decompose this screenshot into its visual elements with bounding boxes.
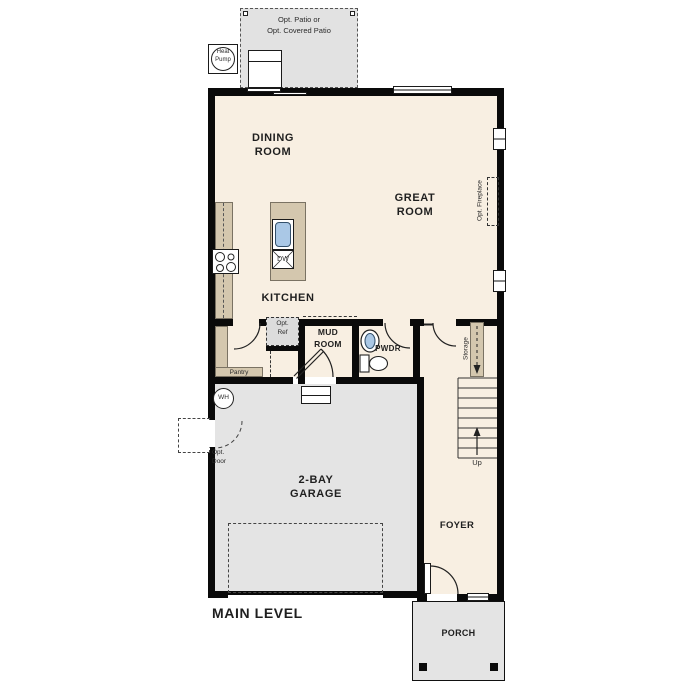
patio-label-line2: Opt. Covered Patio <box>240 27 358 35</box>
wall-garage-foyer-divider <box>417 377 424 598</box>
opt-door-label-line2: Door <box>212 458 238 465</box>
heat-pump-label-line1: Heat <box>208 49 238 56</box>
porch-post-right <box>490 663 498 671</box>
dining-room-label-line1: DINING <box>223 132 323 144</box>
mud-room-label-line2: ROOM <box>303 340 353 349</box>
window-foyer-front <box>467 593 489 601</box>
wall-pwdr-right <box>413 319 420 384</box>
foyer-label: FOYER <box>417 521 497 531</box>
kitchen-label: KITCHEN <box>238 292 338 304</box>
island-sink-icon <box>275 222 291 247</box>
opt-fireplace-box <box>487 177 499 226</box>
heat-pump-label-line2: Pump <box>208 57 238 64</box>
great-room-label-line2: ROOM <box>365 206 465 218</box>
dining-room-label-line2: ROOM <box>223 146 323 158</box>
patio-label-line1: Opt. Patio or <box>240 16 358 24</box>
up-label: Up <box>465 459 489 467</box>
sliding-door-panel-b <box>273 92 307 96</box>
patio-steps <box>248 50 282 88</box>
wall-garage-top-a <box>208 377 293 384</box>
wall-kitchen-stub <box>215 319 233 326</box>
opt-ref-label-line1: Opt. <box>266 320 299 327</box>
window-top <box>393 86 452 94</box>
opt-fireplace-label: Opt. Fireplace <box>476 171 483 231</box>
wall-foyer-bottom-b <box>457 594 467 601</box>
floor-plan: Opt. Patio or Opt. Covered Patio Heat Pu… <box>0 0 687 687</box>
cooktop-icon <box>212 249 239 274</box>
opt-door-wall-gap <box>208 420 215 447</box>
wall-garage-top-b <box>336 377 424 384</box>
wall-mudroom-top <box>302 319 383 326</box>
garage-label-line1: 2-BAY <box>266 474 366 486</box>
garage-door-opening <box>228 595 383 599</box>
front-door-leaf <box>424 563 431 594</box>
opt-door-label-line1: Opt. <box>212 449 238 456</box>
wall-pwdr-left <box>352 319 359 384</box>
porch-label: PORCH <box>412 629 505 639</box>
opt-ref-label-line2: Ref <box>266 329 299 336</box>
dishwasher-label: DW <box>272 256 294 264</box>
plan-title: MAIN LEVEL <box>212 606 432 621</box>
pantry-label: Pantry <box>215 369 263 376</box>
wall-right <box>497 96 504 601</box>
window-right-lower <box>493 270 506 292</box>
garage-label-line2: GARAGE <box>266 488 366 500</box>
garage-steps <box>301 386 331 404</box>
foyer-floor <box>424 377 497 594</box>
storage-label: Storage <box>462 319 469 379</box>
water-heater-label: WH <box>213 394 234 401</box>
porch-post-left <box>419 663 427 671</box>
wall-left <box>208 88 215 598</box>
opt-wall-dashed-horizontal <box>303 316 357 317</box>
window-right-upper <box>493 128 506 150</box>
great-room-label-line1: GREAT <box>365 192 465 204</box>
mud-room-label-line1: MUD <box>303 328 353 337</box>
wall-foyer-bottom-a <box>417 594 427 601</box>
pwdr-label: PWDR <box>366 345 410 354</box>
wall-ref-left-stub <box>259 319 266 326</box>
opt-wall-dashed-vertical <box>270 351 271 377</box>
storage-shelf <box>470 322 484 377</box>
wall-foyer-bottom-c <box>489 594 504 601</box>
opt-door-box <box>178 418 210 453</box>
garage-door-bay <box>228 523 383 593</box>
